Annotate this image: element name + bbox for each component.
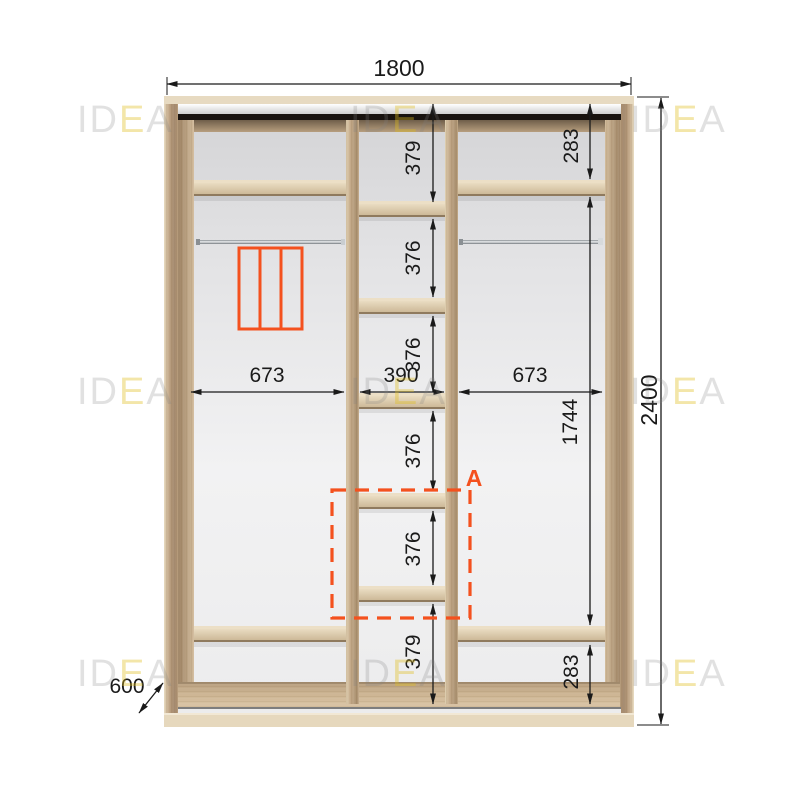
watermark: IDEA [77,653,174,695]
wood-grain [605,120,621,707]
label-right-top-cell: 283 [560,128,583,163]
middle-shelf-5 [359,586,445,606]
wood-grain [178,120,194,707]
watermark: IDEA [630,653,727,695]
bottom-panel-edge [164,713,634,715]
label-right-bottom-cell: 283 [560,654,583,689]
bottom-track-shadow [178,707,621,709]
bottom-panel [164,713,634,727]
wardrobe-technical-drawing: 1800 2400 600 673 390 673 1744 283 283 3… [0,0,800,800]
right-top-shelf [458,180,605,201]
middle-shelf-1 [359,201,445,221]
label-middle-cell-3: 376 [402,337,425,372]
watermark: IDEA [350,371,447,413]
right-bottom-shelf [458,626,605,647]
bottom-door-track [178,709,621,713]
label-middle-cell-2: 376 [402,240,425,275]
watermark: IDEA [350,99,447,141]
label-middle-cell-5: 376 [402,531,425,566]
label-right-section-width: 673 [512,364,547,387]
watermark: IDEA [350,653,447,695]
middle-shelf-4 [359,493,445,513]
label-total-width: 1800 [373,55,424,81]
watermark: IDEA [630,99,727,141]
label-middle-cell-1: 379 [402,140,425,175]
left-bottom-shelf [194,626,346,647]
watermark: IDEA [77,99,174,141]
detail-a-label: A [466,465,483,491]
wardrobe-diagram-svg: 1800 2400 600 673 390 673 1744 283 283 3… [0,0,800,800]
middle-shelf-2 [359,298,445,318]
watermark: IDEA [77,371,174,413]
label-left-section-width: 673 [249,364,284,387]
label-right-inner-height: 1744 [559,398,582,445]
watermark: IDEA [630,371,727,413]
left-top-shelf [194,180,346,201]
label-middle-cell-4: 376 [402,433,425,468]
